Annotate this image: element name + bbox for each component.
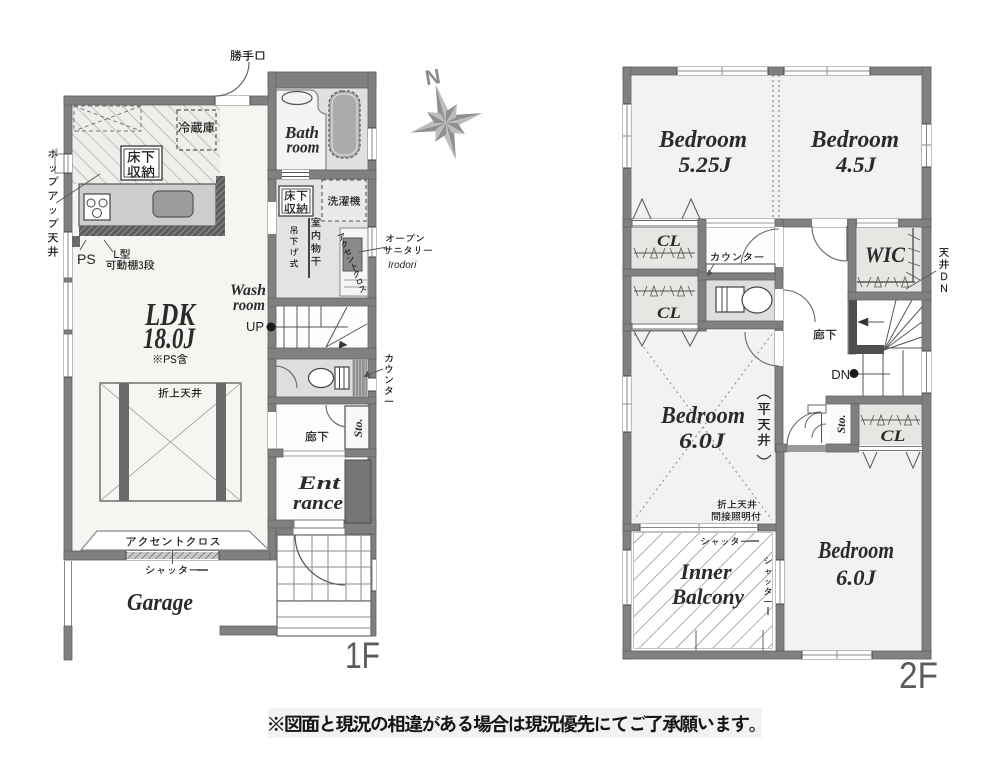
svg-text:Sto.: Sto. bbox=[834, 414, 848, 433]
svg-text:CL: CL bbox=[881, 428, 906, 445]
svg-text:rance: rance bbox=[293, 493, 344, 514]
svg-text:Bedroom: Bedroom bbox=[810, 127, 899, 153]
svg-text:5.25J: 5.25J bbox=[679, 152, 733, 177]
svg-text:2F: 2F bbox=[899, 655, 938, 696]
svg-text:Sto.: Sto. bbox=[351, 418, 365, 437]
svg-text:Inner: Inner bbox=[680, 559, 732, 584]
svg-text:Balcony: Balcony bbox=[671, 584, 744, 609]
svg-text:N: N bbox=[423, 65, 442, 90]
svg-text:1F: 1F bbox=[345, 635, 380, 676]
svg-text:PS: PS bbox=[77, 251, 96, 267]
svg-text:Bedroom: Bedroom bbox=[660, 403, 745, 429]
svg-text:room: room bbox=[233, 297, 265, 314]
svg-text:Garage: Garage bbox=[127, 590, 193, 616]
svg-text:6.0J: 6.0J bbox=[679, 428, 726, 453]
svg-text:4.5J: 4.5J bbox=[835, 152, 877, 177]
svg-text:UP: UP bbox=[246, 319, 264, 334]
svg-text:Bedroom: Bedroom bbox=[658, 127, 747, 153]
svg-text:WIC: WIC bbox=[865, 242, 905, 267]
svg-text:room: room bbox=[287, 138, 320, 157]
svg-text:Ent: Ent bbox=[297, 473, 342, 494]
svg-text:6.0J: 6.0J bbox=[836, 565, 877, 590]
svg-text:CL: CL bbox=[657, 305, 681, 322]
svg-text:DN: DN bbox=[831, 367, 850, 382]
svg-text:CL: CL bbox=[657, 233, 681, 250]
svg-text:18.0J: 18.0J bbox=[143, 322, 196, 355]
svg-text:Bedroom: Bedroom bbox=[817, 538, 894, 564]
svg-text:Irodori: Irodori bbox=[388, 260, 417, 271]
